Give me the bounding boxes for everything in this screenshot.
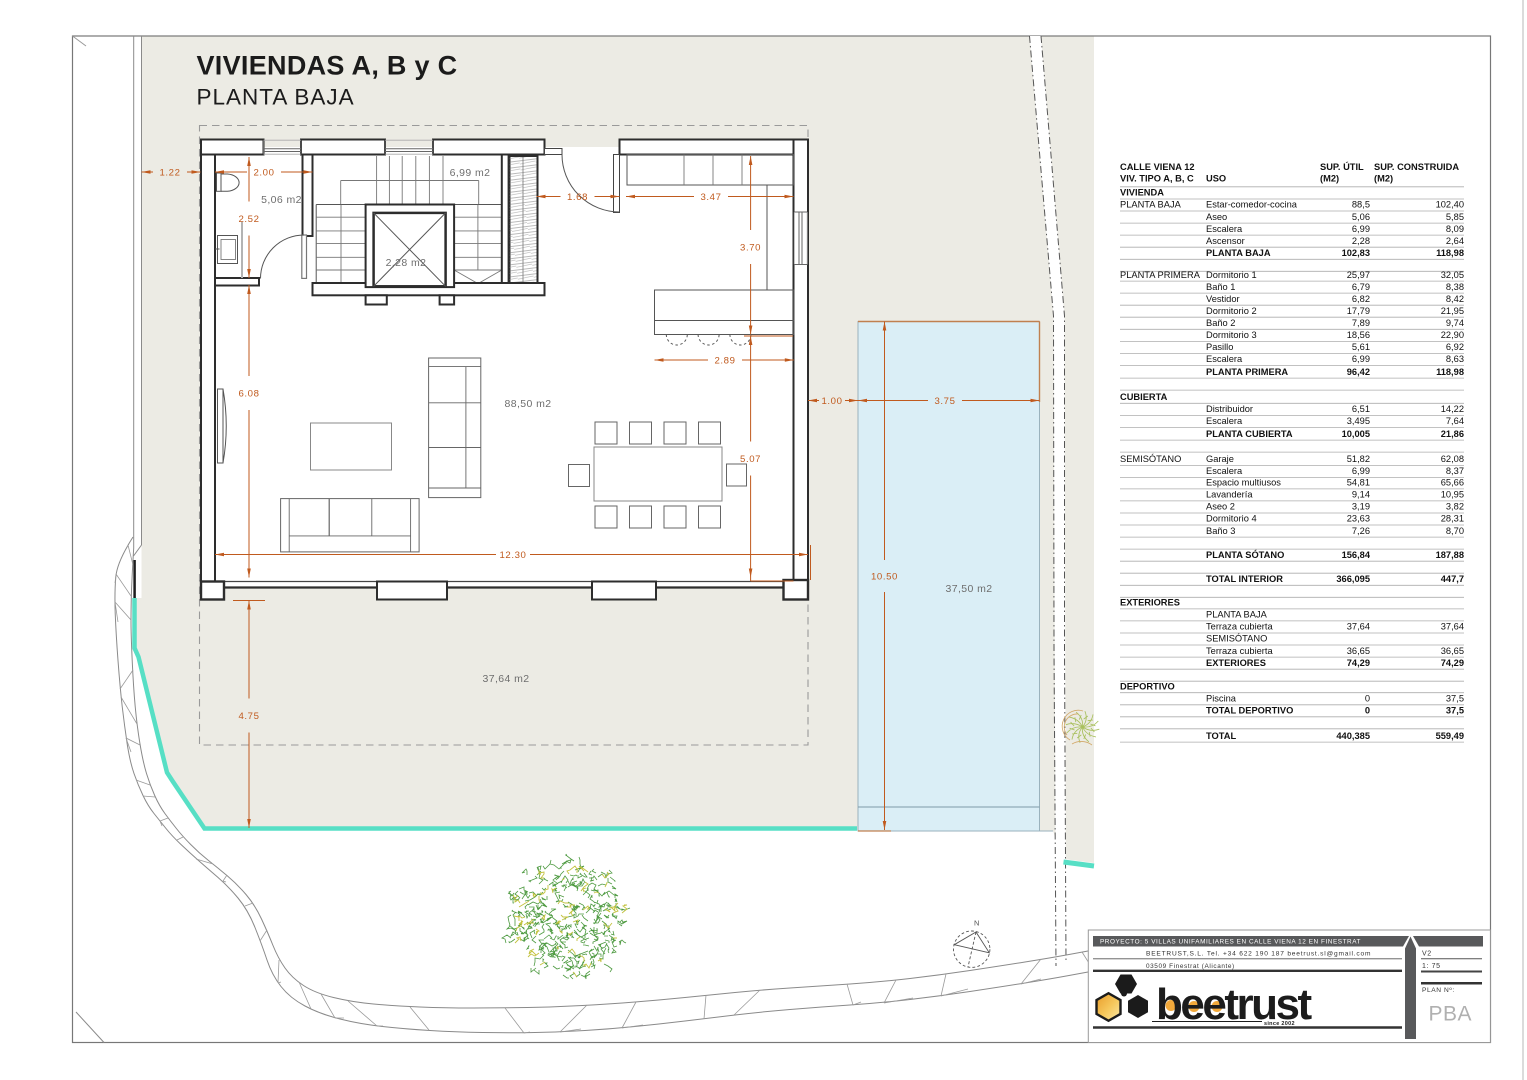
svg-text:6.08: 6.08 bbox=[238, 388, 259, 399]
svg-text:366,095: 366,095 bbox=[1336, 574, 1370, 584]
svg-text:Piscina: Piscina bbox=[1206, 694, 1237, 704]
svg-text:Escalera: Escalera bbox=[1206, 466, 1243, 476]
svg-text:Vestidor: Vestidor bbox=[1206, 294, 1240, 304]
svg-text:2.00: 2.00 bbox=[253, 167, 274, 178]
svg-text:VIVIENDAS A, B y C: VIVIENDAS A, B y C bbox=[197, 51, 458, 81]
svg-text:PBA: PBA bbox=[1429, 1003, 1473, 1026]
svg-text:Garaje: Garaje bbox=[1206, 454, 1234, 464]
svg-text:2.89: 2.89 bbox=[714, 355, 735, 366]
svg-text:6,99: 6,99 bbox=[1352, 466, 1370, 476]
svg-text:156,84: 156,84 bbox=[1342, 550, 1371, 560]
svg-text:TOTAL: TOTAL bbox=[1206, 731, 1236, 741]
svg-text:N: N bbox=[974, 919, 980, 928]
svg-text:14,22: 14,22 bbox=[1441, 404, 1464, 414]
svg-text:37,50 m2: 37,50 m2 bbox=[946, 583, 993, 595]
svg-text:TOTAL INTERIOR: TOTAL INTERIOR bbox=[1206, 574, 1283, 584]
svg-text:8,38: 8,38 bbox=[1446, 282, 1464, 292]
svg-text:USO: USO bbox=[1206, 174, 1226, 184]
svg-text:51,82: 51,82 bbox=[1347, 454, 1370, 464]
svg-text:Estar-comedor-cocina: Estar-comedor-cocina bbox=[1206, 200, 1298, 210]
svg-text:10,005: 10,005 bbox=[1342, 429, 1370, 439]
svg-text:6,51: 6,51 bbox=[1352, 404, 1370, 414]
svg-text:118,98: 118,98 bbox=[1436, 367, 1464, 377]
svg-text:(M2): (M2) bbox=[1374, 174, 1393, 184]
svg-text:Dormitorio 3: Dormitorio 3 bbox=[1206, 330, 1257, 340]
svg-text:PLAN Nº:: PLAN Nº: bbox=[1422, 987, 1455, 994]
svg-text:0: 0 bbox=[1365, 694, 1370, 704]
svg-text:TOTAL DEPORTIVO: TOTAL DEPORTIVO bbox=[1206, 706, 1293, 716]
svg-text:Dormitorio 1: Dormitorio 1 bbox=[1206, 270, 1257, 280]
svg-text:2,28 m2: 2,28 m2 bbox=[386, 257, 427, 269]
svg-text:6,99: 6,99 bbox=[1352, 354, 1370, 364]
svg-text:Terraza cubierta: Terraza cubierta bbox=[1206, 622, 1273, 632]
svg-text:6,82: 6,82 bbox=[1352, 294, 1370, 304]
svg-text:VIV. TIPO A, B, C: VIV. TIPO A, B, C bbox=[1120, 174, 1194, 184]
svg-text:Ascensor: Ascensor bbox=[1206, 236, 1245, 246]
svg-text:2,64: 2,64 bbox=[1446, 236, 1464, 246]
svg-text:3,19: 3,19 bbox=[1352, 502, 1370, 512]
svg-text:10.50: 10.50 bbox=[871, 571, 898, 582]
svg-text:Baño 2: Baño 2 bbox=[1206, 318, 1235, 328]
svg-text:Lavandería: Lavandería bbox=[1206, 490, 1253, 500]
svg-text:37,5: 37,5 bbox=[1446, 694, 1464, 704]
svg-text:SEMISÓTANO: SEMISÓTANO bbox=[1206, 634, 1267, 644]
svg-text:62,08: 62,08 bbox=[1441, 454, 1464, 464]
svg-text:37,64: 37,64 bbox=[1441, 622, 1464, 632]
svg-text:4.75: 4.75 bbox=[238, 711, 259, 722]
svg-text:88,50 m2: 88,50 m2 bbox=[505, 398, 552, 410]
svg-text:Terraza cubierta: Terraza cubierta bbox=[1206, 646, 1273, 656]
svg-text:Pasillo: Pasillo bbox=[1206, 342, 1233, 352]
svg-text:559,49: 559,49 bbox=[1436, 731, 1464, 741]
svg-text:Dormitorio 4: Dormitorio 4 bbox=[1206, 514, 1257, 524]
svg-text:Aseo: Aseo bbox=[1206, 212, 1227, 222]
svg-text:8,42: 8,42 bbox=[1446, 294, 1464, 304]
svg-text:PROYECTO: 5 VILLAS UNIFAMIL: PROYECTO: 5 VILLAS UNIFAMILIARES EN CALL… bbox=[1100, 939, 1361, 946]
svg-text:EXTERIORES: EXTERIORES bbox=[1206, 658, 1266, 668]
svg-text:PLANTA PRIMERA: PLANTA PRIMERA bbox=[1120, 270, 1201, 280]
svg-text:PLANTA BAJA: PLANTA BAJA bbox=[197, 85, 355, 110]
svg-text:7,64: 7,64 bbox=[1446, 416, 1464, 426]
svg-text:2,28: 2,28 bbox=[1352, 236, 1370, 246]
svg-text:36,65: 36,65 bbox=[1441, 646, 1464, 656]
svg-text:102,40: 102,40 bbox=[1436, 200, 1464, 210]
svg-text:3,495: 3,495 bbox=[1347, 416, 1370, 426]
svg-text:22,90: 22,90 bbox=[1441, 330, 1464, 340]
svg-text:17,79: 17,79 bbox=[1347, 306, 1370, 316]
svg-text:37,5: 37,5 bbox=[1446, 706, 1464, 716]
svg-text:3.70: 3.70 bbox=[740, 242, 761, 253]
svg-text:74,29: 74,29 bbox=[1441, 658, 1464, 668]
svg-text:Escalera: Escalera bbox=[1206, 224, 1243, 234]
svg-text:21,86: 21,86 bbox=[1441, 429, 1464, 439]
svg-text:SUP. ÚTIL: SUP. ÚTIL bbox=[1320, 161, 1364, 172]
svg-text:88,5: 88,5 bbox=[1352, 200, 1370, 210]
svg-text:6,99: 6,99 bbox=[1352, 224, 1370, 234]
svg-text:SUP. CONSTRUIDA: SUP. CONSTRUIDA bbox=[1374, 162, 1459, 172]
svg-text:EXTERIORES: EXTERIORES bbox=[1120, 598, 1180, 608]
svg-text:65,66: 65,66 bbox=[1441, 478, 1464, 488]
svg-text:54,81: 54,81 bbox=[1347, 478, 1370, 488]
svg-text:6,92: 6,92 bbox=[1446, 342, 1464, 352]
svg-text:Baño 3: Baño 3 bbox=[1206, 526, 1235, 536]
svg-text:6,79: 6,79 bbox=[1352, 282, 1370, 292]
svg-text:(M2): (M2) bbox=[1320, 174, 1339, 184]
svg-text:Aseo 2: Aseo 2 bbox=[1206, 502, 1235, 512]
svg-text:8,63: 8,63 bbox=[1446, 354, 1464, 364]
svg-text:118,98: 118,98 bbox=[1436, 248, 1464, 258]
svg-text:37,64: 37,64 bbox=[1347, 622, 1370, 632]
svg-text:DEPORTIVO: DEPORTIVO bbox=[1120, 681, 1175, 691]
svg-text:7,26: 7,26 bbox=[1352, 526, 1370, 536]
svg-text:440,385: 440,385 bbox=[1336, 731, 1370, 741]
svg-text:5,06: 5,06 bbox=[1352, 212, 1370, 222]
svg-text:25,97: 25,97 bbox=[1347, 270, 1370, 280]
svg-text:PLANTA SÓTANO: PLANTA SÓTANO bbox=[1206, 549, 1284, 560]
svg-text:23,63: 23,63 bbox=[1347, 514, 1370, 524]
svg-text:6,99 m2: 6,99 m2 bbox=[450, 167, 491, 179]
svg-text:PLANTA CUBIERTA: PLANTA CUBIERTA bbox=[1206, 429, 1293, 439]
svg-text:10,95: 10,95 bbox=[1441, 490, 1464, 500]
svg-text:5,06 m2: 5,06 m2 bbox=[261, 194, 302, 206]
svg-text:37,64 m2: 37,64 m2 bbox=[483, 673, 530, 685]
svg-text:3.47: 3.47 bbox=[700, 192, 721, 203]
svg-text:8,70: 8,70 bbox=[1446, 526, 1464, 536]
svg-text:5.07: 5.07 bbox=[740, 454, 761, 465]
svg-text:VIVIENDA: VIVIENDA bbox=[1120, 188, 1164, 198]
svg-text:CUBIERTA: CUBIERTA bbox=[1120, 392, 1168, 402]
svg-text:7,89: 7,89 bbox=[1352, 318, 1370, 328]
svg-text:03509 Finestrat (Alicante): 03509 Finestrat (Alicante) bbox=[1146, 963, 1235, 970]
svg-text:32,05: 32,05 bbox=[1441, 270, 1464, 280]
svg-text:1: 75: 1: 75 bbox=[1422, 963, 1441, 970]
svg-text:PLANTA BAJA: PLANTA BAJA bbox=[1206, 248, 1271, 258]
svg-text:since 2002: since 2002 bbox=[1264, 1021, 1295, 1027]
svg-text:V2: V2 bbox=[1422, 951, 1432, 958]
svg-text:96,42: 96,42 bbox=[1347, 367, 1370, 377]
svg-text:BEETRUST,S.L. Tel. +34 622: BEETRUST,S.L. Tel. +34 622 190 187 beetr… bbox=[1146, 951, 1371, 958]
svg-text:PLANTA PRIMERA: PLANTA PRIMERA bbox=[1206, 367, 1288, 377]
svg-text:187,88: 187,88 bbox=[1436, 550, 1464, 560]
svg-text:12.30: 12.30 bbox=[499, 550, 526, 561]
svg-text:9,74: 9,74 bbox=[1446, 318, 1464, 328]
svg-text:PLANTA BAJA: PLANTA BAJA bbox=[1120, 200, 1182, 210]
svg-text:SEMISÓTANO: SEMISÓTANO bbox=[1120, 454, 1181, 464]
svg-text:Baño 1: Baño 1 bbox=[1206, 282, 1235, 292]
svg-text:21,95: 21,95 bbox=[1441, 306, 1464, 316]
svg-text:28,31: 28,31 bbox=[1441, 514, 1464, 524]
svg-text:8,37: 8,37 bbox=[1446, 466, 1464, 476]
svg-text:36,65: 36,65 bbox=[1347, 646, 1370, 656]
svg-text:Espacio multiusos: Espacio multiusos bbox=[1206, 478, 1281, 488]
svg-text:447,7: 447,7 bbox=[1441, 574, 1464, 584]
svg-text:3.75: 3.75 bbox=[934, 396, 955, 407]
svg-text:1.00: 1.00 bbox=[821, 396, 842, 407]
svg-text:Dormitorio 2: Dormitorio 2 bbox=[1206, 306, 1257, 316]
svg-text:Escalera: Escalera bbox=[1206, 416, 1243, 426]
svg-text:CALLE VIENA 12: CALLE VIENA 12 bbox=[1120, 162, 1195, 172]
svg-text:9,14: 9,14 bbox=[1352, 490, 1370, 500]
svg-text:0: 0 bbox=[1365, 706, 1370, 716]
svg-text:3,82: 3,82 bbox=[1446, 502, 1464, 512]
svg-text:8,09: 8,09 bbox=[1446, 224, 1464, 234]
svg-text:5,85: 5,85 bbox=[1446, 212, 1464, 222]
svg-text:Distribuidor: Distribuidor bbox=[1206, 404, 1253, 414]
svg-text:102,83: 102,83 bbox=[1342, 248, 1370, 258]
svg-text:PLANTA BAJA: PLANTA BAJA bbox=[1206, 610, 1268, 620]
svg-text:5,61: 5,61 bbox=[1352, 342, 1370, 352]
svg-text:18,56: 18,56 bbox=[1347, 330, 1370, 340]
svg-text:74,29: 74,29 bbox=[1347, 658, 1370, 668]
svg-text:1.68: 1.68 bbox=[567, 192, 588, 203]
svg-text:Escalera: Escalera bbox=[1206, 354, 1243, 364]
svg-text:1.22: 1.22 bbox=[159, 167, 180, 178]
svg-text:2.52: 2.52 bbox=[238, 214, 259, 225]
